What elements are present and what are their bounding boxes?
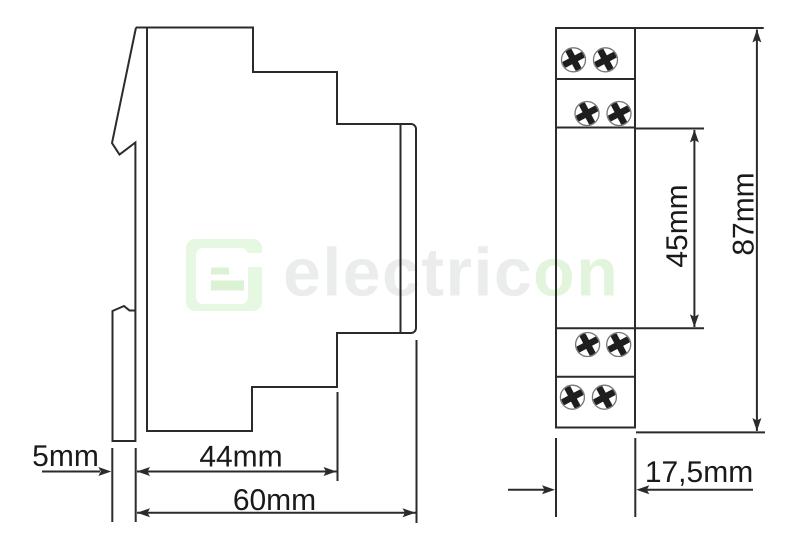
svg-text:45mm: 45mm — [661, 184, 694, 267]
svg-text:electricon: electricon — [283, 235, 619, 311]
svg-text:87mm: 87mm — [728, 172, 761, 255]
svg-text:17,5mm: 17,5mm — [645, 456, 753, 489]
svg-text:44mm: 44mm — [199, 441, 282, 474]
svg-text:60mm: 60mm — [233, 484, 316, 517]
svg-text:5mm: 5mm — [32, 440, 99, 473]
